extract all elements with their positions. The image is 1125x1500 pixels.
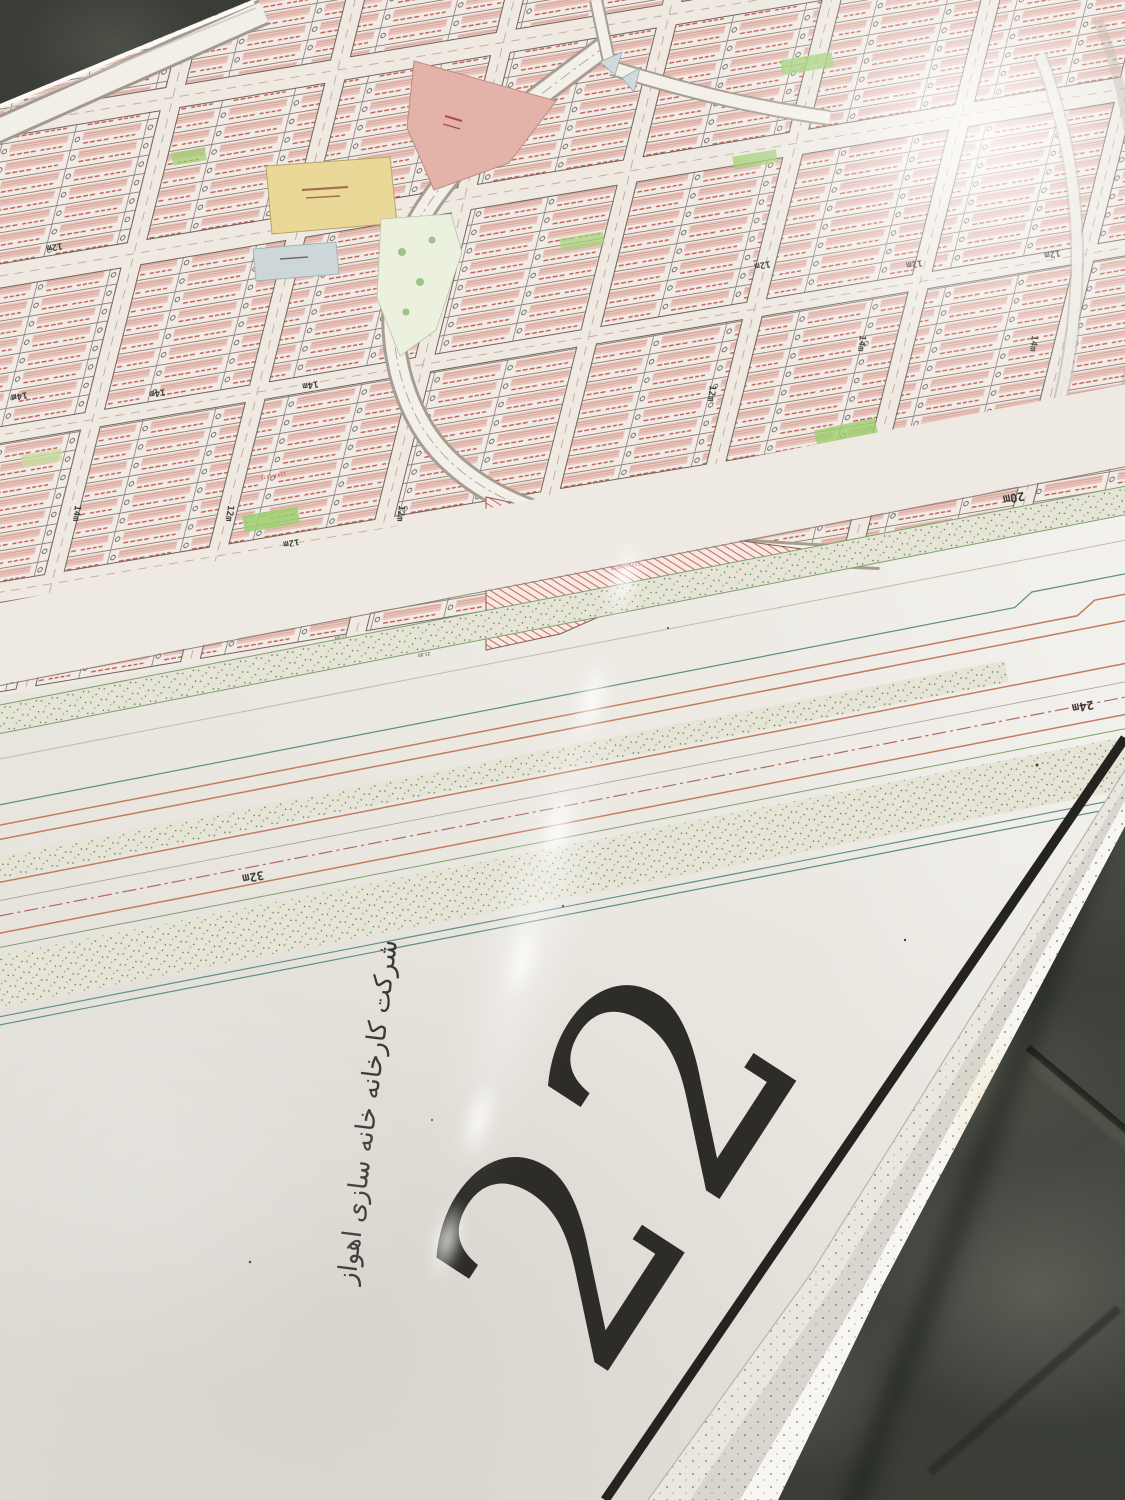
street-width-label: 12m (394, 505, 406, 523)
street-width-label: 12m (705, 385, 717, 403)
public-block-blue (253, 242, 339, 281)
tree (416, 278, 424, 286)
street-width-label: 12m (223, 505, 235, 523)
tree (403, 309, 410, 316)
tree (429, 237, 436, 244)
tree (398, 248, 406, 256)
street-width-label: 14m (1027, 335, 1039, 353)
street-width-label: 14m (70, 505, 82, 523)
public-block-yellow (266, 157, 397, 234)
road-width-label: 24m (1071, 697, 1095, 715)
street-width-label: 14m (855, 335, 867, 353)
photo-of-plot-map: 14m 14m 14m 14m 14m 14m 12m 12m 12m 12m … (0, 0, 1125, 1500)
